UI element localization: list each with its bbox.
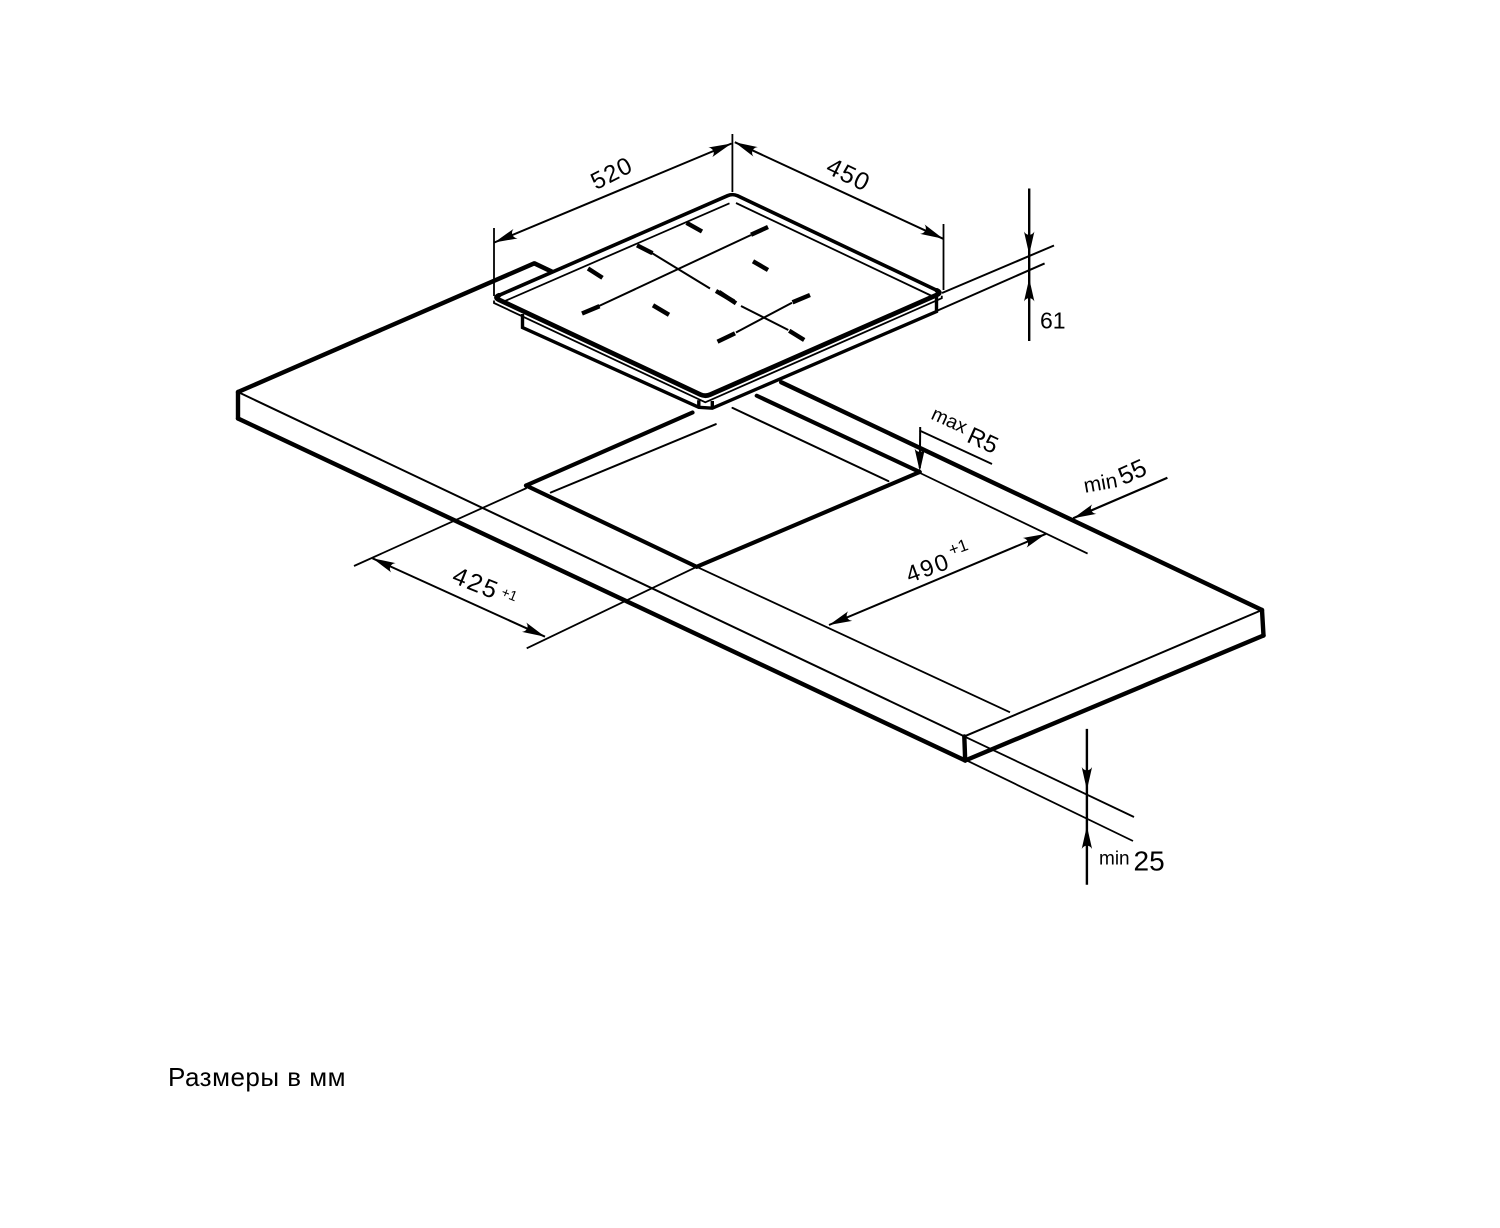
- svg-text:min: min: [1099, 848, 1130, 869]
- svg-text:450: 450: [822, 153, 875, 198]
- svg-text:min: min: [1082, 469, 1119, 498]
- svg-text:490: 490: [902, 548, 953, 588]
- svg-text:+1: +1: [499, 584, 520, 605]
- svg-text:+1: +1: [946, 535, 971, 559]
- svg-text:55: 55: [1114, 454, 1151, 491]
- svg-text:61: 61: [1040, 308, 1066, 334]
- svg-text:max: max: [928, 403, 971, 438]
- svg-text:520: 520: [586, 152, 637, 196]
- svg-text:425: 425: [449, 562, 504, 606]
- svg-text:Размеры в мм: Размеры в мм: [168, 1062, 346, 1092]
- svg-text:25: 25: [1134, 846, 1165, 877]
